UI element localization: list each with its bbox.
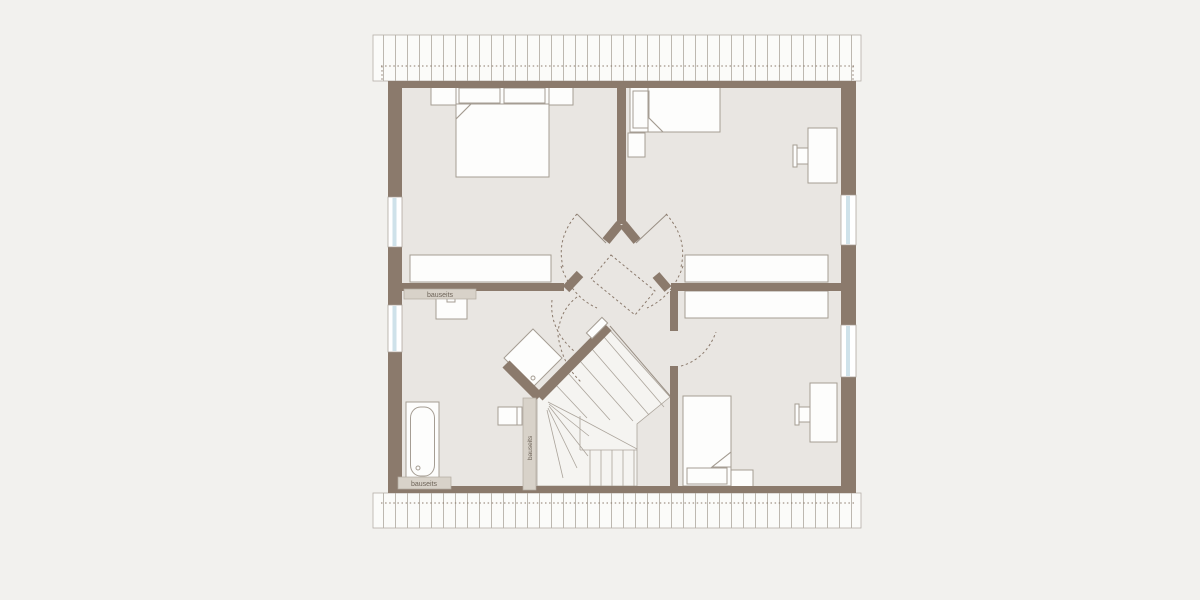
bauseits-wall-bath: bauseits [404, 289, 476, 299]
chair-back [795, 404, 799, 425]
window-left-lower [388, 305, 402, 352]
nightstand [628, 133, 645, 157]
single-bed-bottom [683, 396, 731, 486]
wall-top [388, 81, 856, 88]
chair-seat [799, 407, 810, 422]
chair-seat [797, 148, 808, 164]
double-bed [456, 87, 549, 177]
bauseits-label-bath: bauseits [427, 292, 454, 299]
floor-plan: bauseits bauseits bauseits [0, 0, 1200, 600]
pillow [687, 468, 727, 484]
sideboard [685, 255, 828, 282]
sideboard [410, 255, 551, 282]
roof-overhang-bottom [373, 493, 861, 528]
wardrobe [685, 291, 828, 318]
window-right-upper [841, 195, 856, 245]
wall-bedroom [670, 291, 678, 331]
nightstand [731, 470, 753, 488]
wall-mid-right [671, 283, 841, 291]
bathtub [406, 402, 439, 481]
window-left-upper [388, 197, 402, 247]
bauseits-wall-tub: bauseits [398, 477, 451, 489]
floor-plan-canvas: bauseits bauseits bauseits [0, 0, 1200, 600]
bauseits-label-stair: bauseits [527, 435, 534, 460]
washbasin [436, 296, 467, 319]
roof-overhang-top [373, 35, 861, 81]
chair-back [793, 145, 797, 167]
pillow [459, 88, 500, 103]
pillow [504, 88, 545, 103]
nightstand [431, 86, 456, 105]
bauseits-label-tub: bauseits [411, 481, 438, 488]
wall-right [841, 81, 856, 195]
window-right-lower [841, 325, 856, 377]
wall-center-top [617, 88, 626, 224]
single-bed-top [630, 87, 720, 132]
wall-bottom [388, 486, 856, 493]
nightstand [549, 87, 573, 105]
bauseits-wall-stair: bauseits [523, 398, 536, 490]
pillow [633, 91, 649, 128]
washbasin-small [498, 407, 522, 425]
wall-left [388, 81, 402, 197]
